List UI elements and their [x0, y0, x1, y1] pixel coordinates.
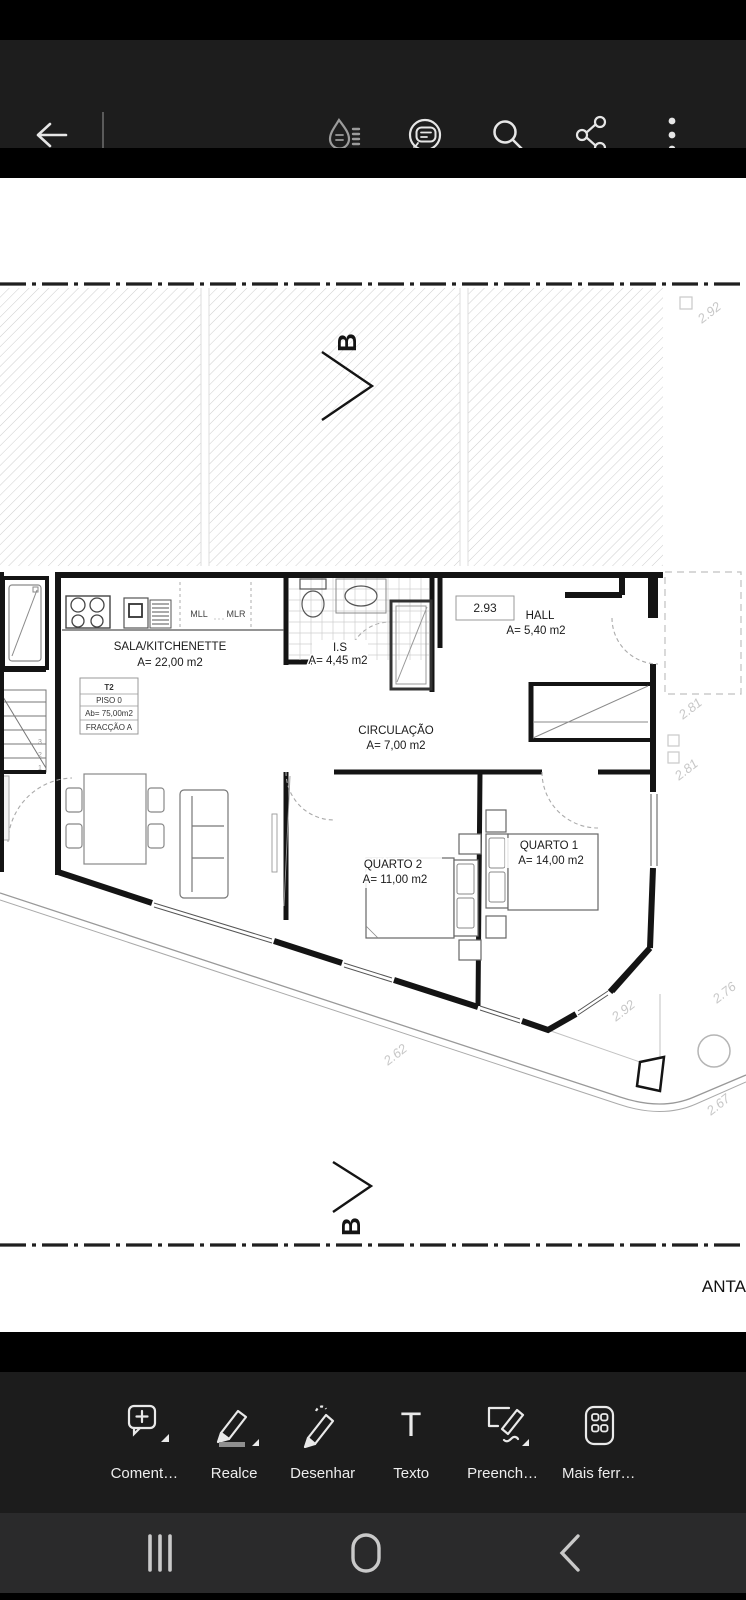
annotation-toolbar: Coment… Realce Desenhar	[0, 1372, 746, 1513]
tool-draw[interactable]: Desenhar	[290, 1402, 355, 1482]
room-circulacao-area: A= 7,00 m2	[366, 740, 425, 752]
room-sala-name: SALA/KITCHENETTE	[114, 641, 227, 653]
section-label-top: B	[332, 333, 362, 352]
nav-home-button[interactable]	[306, 1513, 426, 1593]
tool-draw-label: Desenhar	[290, 1465, 355, 1482]
unit-type: T2	[104, 683, 114, 692]
room-quarto2-name: QUARTO 2	[364, 859, 422, 871]
dining-set	[66, 774, 164, 864]
height-box-value: 2.93	[473, 601, 497, 615]
fill-and-sign-icon	[476, 1402, 530, 1453]
tool-comment[interactable]: Coment…	[111, 1402, 179, 1482]
dim-right-3: 2.76	[709, 978, 740, 1006]
more-tools-icon	[572, 1402, 626, 1453]
stair-number: 3	[38, 739, 42, 746]
status-bar	[0, 0, 746, 40]
app-bar	[0, 40, 746, 148]
room-hall-name: HALL	[526, 610, 555, 622]
nav-back-button[interactable]	[510, 1513, 630, 1593]
bed-quarto1	[486, 810, 598, 938]
tool-highlight[interactable]: Realce	[202, 1402, 266, 1482]
floor-plan-drawing[interactable]: B B	[0, 178, 746, 1332]
add-comment-icon	[117, 1402, 171, 1453]
svg-text:T: T	[401, 1406, 422, 1444]
tool-fill-sign-label: Preench…	[467, 1465, 538, 1482]
room-is-name: I.S	[333, 642, 347, 654]
dim-squares	[668, 297, 692, 763]
tool-text[interactable]: T Texto	[379, 1402, 443, 1482]
room-is-area: A= 4,45 m2	[308, 655, 367, 667]
staircase	[0, 690, 46, 772]
page-gap-top	[0, 148, 746, 178]
dim-right-2: 2.81	[671, 756, 701, 784]
highlighter-icon	[207, 1402, 261, 1453]
dashed-boundary-rect	[665, 572, 741, 694]
nav-recents-button[interactable]	[100, 1513, 220, 1593]
drawing-title-partial: ANTA	[702, 1277, 746, 1296]
closet-detail	[533, 686, 648, 738]
sofa	[180, 790, 228, 898]
dim-bottom-mid: 2.92	[608, 996, 639, 1024]
room-sala-area: A= 22,00 m2	[137, 657, 203, 669]
counter-label-mlr: MLR	[226, 609, 246, 619]
room-quarto2-area: A= 11,00 m2	[363, 874, 428, 886]
tool-text-label: Texto	[393, 1465, 429, 1482]
stair-number: 2	[38, 752, 42, 759]
section-label-bottom: B	[336, 1217, 366, 1236]
room-circulacao-name: CIRCULAÇÃO	[358, 724, 433, 737]
screen-bottom-edge	[0, 1593, 746, 1600]
section-marker-bottom	[333, 1162, 371, 1212]
android-nav-bar	[0, 1513, 746, 1593]
dim-right-1: 2.81	[675, 695, 705, 723]
room-hall-area: A= 5,40 m2	[506, 625, 565, 637]
text-tool-icon: T	[384, 1402, 438, 1453]
dim-bottom-left: 2.62	[380, 1040, 411, 1068]
unit-fraction: FRACÇÃO A	[86, 723, 133, 732]
site-mark-circle	[698, 1035, 730, 1067]
draw-pencil-icon	[296, 1402, 350, 1453]
counter-label-mll: MLL	[190, 609, 208, 619]
shower-box	[391, 601, 431, 689]
unit-area: Ab= 75,00m2	[85, 709, 133, 718]
dim-corner: 2.67	[703, 1090, 734, 1118]
pdf-viewer-screen: B B	[0, 0, 746, 1600]
tool-comment-label: Coment…	[111, 1465, 179, 1482]
document-page[interactable]: B B	[0, 178, 746, 1332]
tool-highlight-label: Realce	[211, 1465, 258, 1482]
dim-top-right: 2.92	[694, 298, 725, 326]
room-quarto1-name: QUARTO 1	[520, 840, 578, 852]
elevator	[3, 578, 47, 668]
bed-quarto2	[366, 834, 481, 960]
tool-fill-sign[interactable]: Preench…	[467, 1402, 538, 1482]
unit-floor: PISO 0	[96, 696, 122, 705]
page-gap-bottom	[0, 1332, 746, 1372]
room-quarto1-area: A= 14,00 m2	[518, 855, 584, 867]
kitchen-counter	[62, 582, 284, 630]
tool-more-label: Mais ferr…	[562, 1465, 635, 1482]
site-mark-parallelogram	[637, 1057, 664, 1091]
tool-more[interactable]: Mais ferr…	[562, 1402, 635, 1482]
hatched-area	[0, 288, 663, 566]
